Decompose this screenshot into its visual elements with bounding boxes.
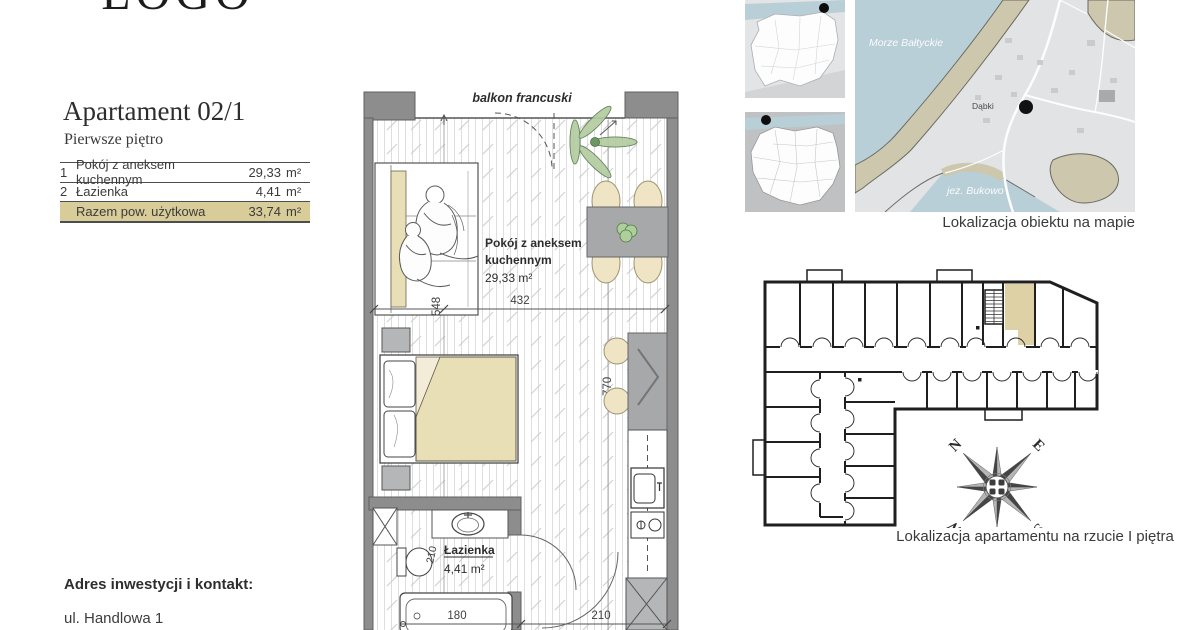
- bar-stool: [604, 388, 630, 414]
- living-room-label: Pokój z aneksem: [485, 236, 582, 250]
- contact-address: ul. Handlowa 1: [64, 610, 163, 627]
- town-label: Dąbki: [972, 101, 994, 111]
- nightstand: [382, 328, 410, 352]
- building-plan-caption: Lokalizacja apartamentu na rzucie I pięt…: [845, 528, 1200, 545]
- detail-map: Morze Bałtyckie Dąbki jez. Bukowo: [855, 0, 1135, 212]
- kitchen-sink: [631, 468, 664, 508]
- room-area-unit: m²: [281, 184, 310, 199]
- compass-west: W: [945, 517, 967, 528]
- highlighted-unit: [1005, 284, 1035, 345]
- logo: LOGO: [88, 0, 268, 21]
- cabinet: [626, 578, 667, 630]
- total-label: Razem pow. użytkowa: [76, 204, 239, 219]
- page-title: Apartament 02/1: [63, 96, 245, 127]
- svg-text:180: 180: [447, 610, 466, 622]
- region-map: [745, 0, 845, 98]
- svg-text:210: 210: [591, 610, 610, 622]
- nightstand: [382, 466, 410, 490]
- room-number: 1: [60, 165, 76, 180]
- map-caption: Lokalizacja obiektu na mapie: [835, 214, 1135, 231]
- total-area-unit: m²: [281, 204, 310, 219]
- sofa: [375, 163, 478, 315]
- kitchen-bar: [628, 333, 667, 430]
- location-marker-icon: [1019, 100, 1033, 114]
- bathroom-label: Łazienka: [444, 543, 495, 557]
- bar-stool: [604, 338, 630, 364]
- building-floor-plan: N E S W: [745, 262, 1180, 528]
- balcony-label: balkon francuski: [472, 91, 572, 105]
- sea-label: Morze Bałtyckie: [869, 37, 943, 49]
- bath-sink: [432, 510, 508, 538]
- poland-map: [745, 112, 845, 212]
- room-area-unit: m²: [281, 165, 310, 180]
- shaft: [373, 508, 397, 545]
- contact-heading: Adres inwestycji i kontakt:: [64, 576, 253, 593]
- staircase: [985, 290, 1003, 324]
- room-number: 2: [60, 184, 76, 199]
- page-subtitle: Pierwsze piętro: [64, 131, 163, 149]
- apartment-brochure-page: LOGO Apartament 02/1 Pierwsze piętro 1 P…: [0, 0, 1200, 630]
- area-table: 1 Pokój z aneksem kuchennym 29,33 m² 2 Ł…: [60, 162, 310, 223]
- compass-north: N: [946, 436, 965, 455]
- apartment-floor-plan: Pokój z aneksem kuchennym 29,33 m² balko…: [360, 85, 690, 630]
- location-marker-icon: [819, 3, 829, 13]
- room-area: 29,33: [239, 165, 281, 180]
- building-large: [1099, 90, 1115, 102]
- room-name: Łazienka: [76, 184, 239, 199]
- compass-rose: N E S W: [929, 419, 1065, 528]
- stove: [631, 512, 664, 538]
- living-room-area: 29,33 m²: [485, 271, 532, 285]
- table-total-row: Razem pow. użytkowa 33,74 m²: [60, 202, 310, 223]
- table-row: 2 Łazienka 4,41 m²: [60, 183, 310, 203]
- table-row: 1 Pokój z aneksem kuchennym 29,33 m²: [60, 163, 310, 183]
- lake-label: jez. Bukowo: [945, 185, 1004, 197]
- svg-text:432: 432: [510, 295, 529, 307]
- bathroom-area: 4,41 m²: [444, 562, 485, 576]
- total-area: 33,74: [239, 204, 281, 219]
- location-marker-icon: [761, 115, 771, 125]
- room-area: 4,41: [239, 184, 281, 199]
- living-room-label-2: kuchennym: [485, 253, 552, 267]
- room-name: Pokój z aneksem kuchennym: [76, 157, 239, 187]
- compass-east: E: [1029, 437, 1047, 455]
- svg-text:548: 548: [431, 297, 443, 316]
- compass-south: S: [1030, 520, 1047, 528]
